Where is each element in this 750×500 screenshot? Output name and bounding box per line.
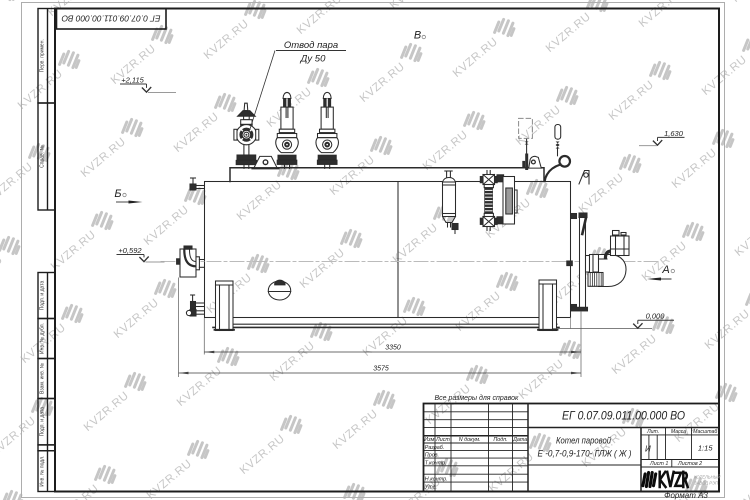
svg-text:Взам. инв. №: Взам. инв. №: [40, 363, 46, 394]
svg-text:Инв. № дубл.: Инв. № дубл.: [40, 323, 46, 354]
svg-text:Листов 2: Листов 2: [677, 461, 702, 467]
svg-text:В: В: [414, 30, 421, 42]
svg-text:Б: Б: [114, 188, 121, 200]
svg-text:N докум.: N докум.: [459, 437, 481, 443]
svg-text:Инв. № подл.: Инв. № подл.: [40, 456, 46, 487]
svg-text:Разраб.: Разраб.: [425, 445, 445, 451]
svg-text:Отвод пара: Отвод пара: [284, 40, 338, 51]
svg-text:Котел паровой: Котел паровой: [556, 436, 612, 447]
svg-text:0,000: 0,000: [646, 311, 666, 320]
svg-text:1:15: 1:15: [698, 444, 713, 453]
svg-text:Утв.: Утв.: [424, 484, 437, 490]
svg-text:КОТЕЛЬНЫЙ: КОТЕЛЬНЫЙ: [694, 475, 720, 480]
svg-text:Дата: Дата: [512, 437, 527, 443]
svg-text:Перв. примен.: Перв. примен.: [40, 39, 46, 72]
svg-text:Е -0,7-0,9-170- ГЛЖ ( Ж ): Е -0,7-0,9-170- ГЛЖ ( Ж ): [538, 449, 632, 459]
svg-text:Лист 1: Лист 1: [649, 461, 668, 467]
svg-text:Масштаб: Масштаб: [693, 429, 718, 435]
svg-text:Лист: Лист: [435, 437, 450, 443]
svg-text:И: И: [645, 445, 651, 454]
svg-text:Подп. и дата: Подп. и дата: [40, 407, 46, 437]
svg-text:Все размеры для справок: Все размеры для справок: [435, 394, 520, 402]
svg-text:3350: 3350: [385, 345, 401, 352]
svg-text:ЗАВОД РЭП: ЗАВОД РЭП: [694, 481, 719, 486]
svg-text:Формат А3: Формат А3: [664, 491, 708, 500]
svg-text:1,630: 1,630: [664, 129, 684, 138]
svg-text:Н.контр.: Н.контр.: [425, 477, 448, 483]
svg-text:Пров.: Пров.: [425, 453, 439, 459]
svg-text:3575: 3575: [373, 366, 389, 373]
svg-text:Изм: Изм: [424, 437, 434, 443]
svg-text:А: А: [661, 264, 669, 276]
svg-text:Масса: Масса: [671, 429, 686, 435]
svg-text:Подп.: Подп.: [493, 437, 507, 443]
svg-text:Лит.: Лит.: [646, 429, 659, 435]
svg-text:ЕГ 0.07.09.011.00.000 ВО: ЕГ 0.07.09.011.00.000 ВО: [562, 409, 685, 423]
svg-text:Справ. №: Справ. №: [40, 145, 46, 168]
svg-text:Ду 50: Ду 50: [300, 54, 326, 65]
svg-text:ЕГ 0.07.09.011.00.000 ВО: ЕГ 0.07.09.011.00.000 ВО: [61, 14, 160, 24]
svg-text:+2,115: +2,115: [121, 76, 144, 85]
svg-text:+0,592: +0,592: [118, 246, 142, 255]
svg-text:Подп. и дата: Подп. и дата: [40, 281, 46, 311]
svg-text:Т.контр.: Т.контр.: [425, 460, 447, 466]
